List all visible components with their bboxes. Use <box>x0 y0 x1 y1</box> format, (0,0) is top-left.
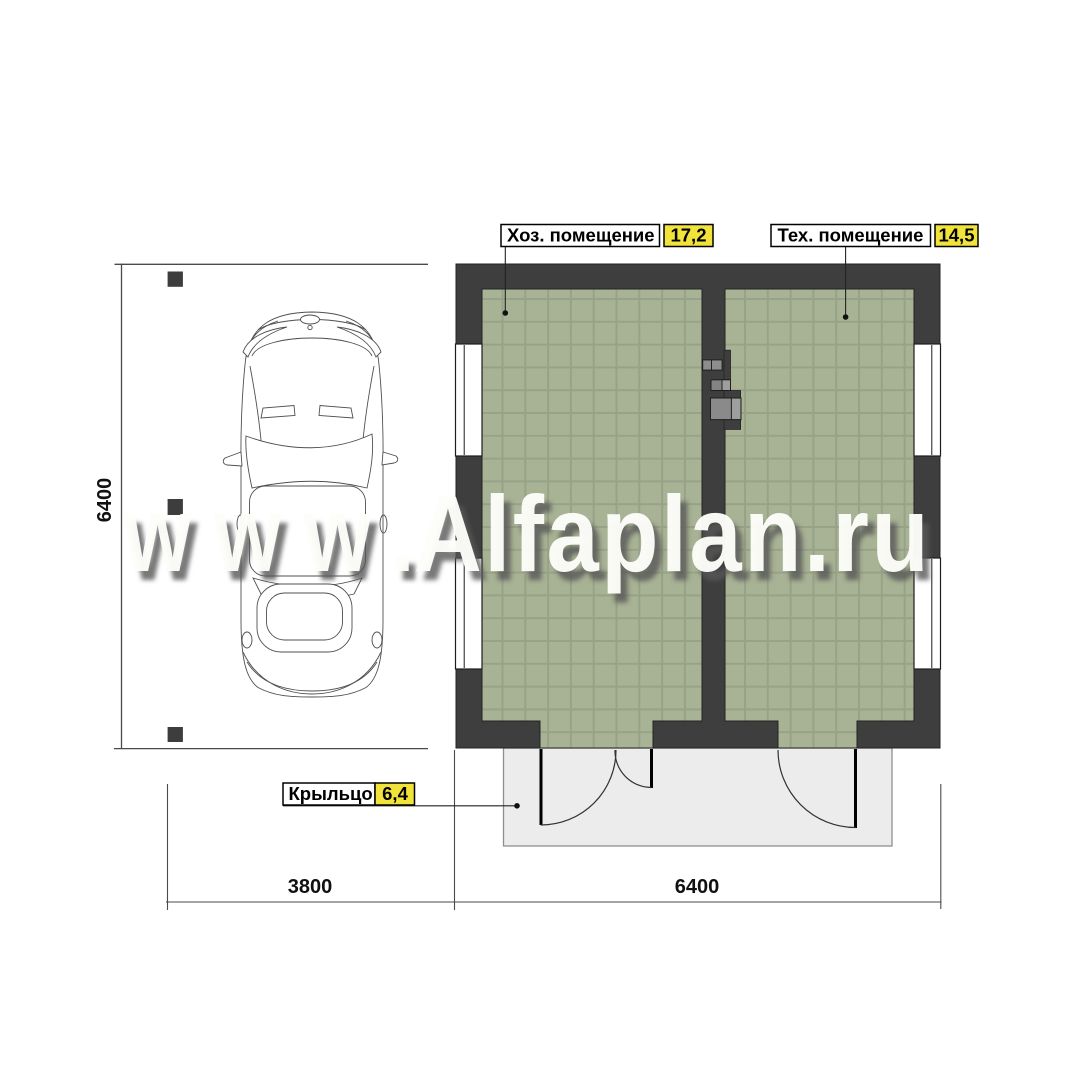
svg-text:17,2: 17,2 <box>670 225 706 246</box>
svg-text:Хоз. помещение: Хоз. помещение <box>507 225 655 246</box>
svg-text:Тех. помещение: Тех. помещение <box>778 225 924 246</box>
svg-text:14,5: 14,5 <box>938 225 974 246</box>
svg-text:6400: 6400 <box>94 478 116 523</box>
svg-text:3800: 3800 <box>288 876 333 898</box>
svg-text:Крыльцо: Крыльцо <box>289 783 373 804</box>
svg-text:6400: 6400 <box>675 876 720 898</box>
svg-text:6,4: 6,4 <box>382 783 408 804</box>
